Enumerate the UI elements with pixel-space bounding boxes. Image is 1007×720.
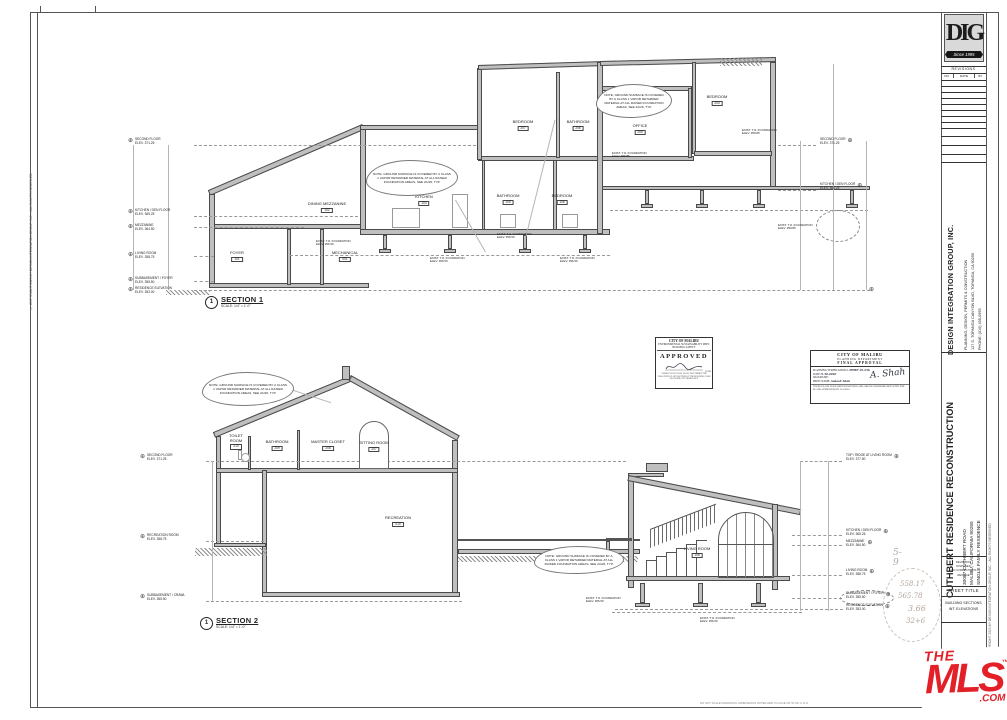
roof-bar — [360, 125, 482, 130]
arched-window — [718, 512, 774, 578]
footing — [579, 249, 591, 253]
room-label: RECREATION010 — [385, 516, 411, 527]
datum-icon: ⊕ — [140, 534, 145, 540]
wall — [692, 62, 696, 154]
foundation-callout: EXIST. T.O. FOUNDATIONELEV. 356.50 — [497, 233, 532, 240]
section-scale: SCALE: 1/4" = 1'-0" — [221, 304, 251, 308]
level-line — [800, 461, 842, 462]
level-marker: ⊕SUBBASEMENT / CRAWLELEV. 355.50 — [140, 594, 185, 602]
wall — [770, 62, 776, 188]
ground-note-cloud: NOTE: GROUND SURFACE IS COVERED BY A CLA… — [202, 372, 294, 406]
chimney — [342, 366, 350, 380]
datum-icon: ⊕ — [140, 454, 145, 460]
stamp-body: PLANNING VERIFICATION #: PPMP 19-236 DAT… — [811, 367, 909, 384]
room-label: BATHROOM209 — [266, 440, 289, 451]
grade-hatch — [195, 548, 267, 556]
level-marker: ⊕RECREATION ROOMELEV. 358.75 — [140, 534, 179, 542]
level-line — [194, 281, 214, 282]
room-label: DINING MEZZANINE102 — [308, 202, 346, 213]
footing — [641, 204, 653, 208]
pier — [757, 190, 761, 204]
stamp-header: CITY OF MALIBU PLANNING DEPARTMENT FINAL… — [811, 351, 909, 367]
footing — [751, 603, 766, 607]
revision-note: REVISIONS DISPOSED NO CORRECTIONS REISSU… — [941, 560, 986, 577]
room-label: BEDROOM204 — [707, 95, 728, 106]
stamp-division: BUILDING SAFETY — [657, 346, 711, 351]
datum-icon: ⊕ — [128, 138, 133, 144]
roof-hatch — [720, 58, 762, 66]
datum-icon: ⊕ — [128, 224, 133, 230]
second-floor-bar — [478, 156, 608, 161]
footing — [753, 204, 765, 208]
level-marker: ⊕KITCHEN / DEN FLOORELEV. 365.25 — [128, 209, 170, 217]
dimension-line — [133, 145, 134, 290]
revisions-title: REVISIONS — [941, 67, 986, 71]
ground-note-cloud: NOTE: GROUND SURFACE IS COVERED BY A CLA… — [534, 546, 624, 574]
datum-icon: ⊕ — [883, 529, 888, 535]
dimension-line — [800, 461, 801, 611]
basement-floor — [262, 592, 460, 597]
room-label: LIVING ROOM108 — [684, 547, 711, 558]
sheet-title-lines: BUILDING SECTIONS INT. ELEVATIONS — [941, 601, 986, 613]
firm-address: 127 S. TOPANGA CANYON BLVD, TOPANGA, CA … — [971, 175, 975, 350]
room-label: BEDROOM207 — [513, 120, 534, 131]
stamp-footer: THESE PLANS HAVE BEEN REVIEWED AND ARE I… — [811, 384, 909, 392]
wall — [452, 440, 458, 595]
room-label: BEDROOM106 — [552, 194, 573, 205]
stamp-fine-print: APPROVAL OF PLANS SHALL NOT PERMIT THE V… — [657, 373, 711, 381]
foundation-callout: EXIST. T.O. FOUNDATIONELEV. 359.85 — [742, 129, 777, 136]
signature-stroke — [664, 362, 704, 371]
building-approval-stamp: CITY OF MALIBU ENVIRONMENTAL SUSTAINABIL… — [655, 337, 713, 389]
frame-bottom-line — [30, 707, 998, 708]
planning-approval-stamp: CITY OF MALIBU PLANNING DEPARTMENT FINAL… — [810, 350, 910, 404]
pier — [645, 190, 649, 204]
kitchen-floor — [360, 229, 610, 235]
datum-icon: ⊕ — [128, 252, 133, 258]
revisions-columns: NO. DATE BY — [941, 74, 986, 78]
stamp-row-value: PPMP 19-236 — [849, 368, 869, 372]
fine-print: DO NOT SCALE DRAWINGS. DIMENSIONS NOTED … — [700, 701, 809, 705]
level-line — [194, 290, 870, 291]
level-marker: ⊕SUBBASEMENT / FOYERELEV. 355.50 — [128, 277, 173, 285]
foundation-callout: EXIST. T.O. FOUNDATIONELEV. 356.50 — [316, 240, 351, 247]
kitchen-island — [392, 208, 420, 228]
dig-monogram: DIG — [945, 15, 983, 51]
section-title: SECTION 1 — [221, 295, 263, 304]
footing — [214, 543, 266, 547]
section-title: SECTION 2 — [216, 616, 258, 625]
foundation-callout: EXIST. T.O. FOUNDATIONELEV. 359.85 — [778, 224, 813, 231]
datum-icon: ⊕ — [128, 287, 133, 293]
datum-icon: ⊕ — [886, 592, 891, 598]
level-marker: LIVING ROOMELEV. 358.75⊕ — [846, 569, 874, 577]
frame-top-line — [30, 12, 998, 13]
datum-icon: ⊕ — [848, 138, 853, 144]
datum-icon: ⊕ — [894, 454, 899, 460]
level-line — [194, 227, 304, 228]
plan-sheet: © COPYRIGHT 2023 BY DESIGN INTEGRATION G… — [0, 0, 1007, 720]
frame-right-line — [998, 12, 999, 708]
pier — [583, 235, 587, 249]
level-line — [778, 190, 816, 191]
copyright-right-text: © COPYRIGHT 2023 BY DESIGN INTEGRATION G… — [988, 360, 992, 660]
room-label: MECHANICAL001 — [332, 251, 358, 262]
project-type: SINGLE FAMILY RESIDENCE — [977, 375, 982, 585]
level-marker: MEZZANINEELEV. 364.50⊕ — [846, 540, 872, 548]
copyright-left-text: © COPYRIGHT 2023 BY DESIGN INTEGRATION G… — [29, 30, 33, 310]
firm-name: DESIGN INTEGRATION GROUP, INC. — [946, 170, 955, 355]
dimension-line — [168, 145, 169, 290]
bath-fixture — [500, 214, 516, 228]
titleblock-inner-line — [986, 12, 987, 708]
foundation-callout: EXIST. T.O. FOUNDATIONELEV. 359.85 — [612, 152, 647, 159]
room-label: KITCHEN103 — [415, 195, 433, 206]
pier — [640, 583, 645, 603]
sheet-title-label: SHEET TITLE — [941, 588, 986, 593]
stamp-row-label: SIGNATURE: — [813, 376, 829, 379]
level-line — [194, 145, 476, 146]
firm-services: PLANNING, DESIGN, PERMITS & CONSTRUCTION — [964, 175, 968, 350]
registration-tick — [40, 6, 41, 12]
footing — [379, 249, 391, 253]
leader-line — [525, 120, 555, 237]
level-marker: SUBBASEMENT / FOYERELEV. 355.50⊕ — [846, 592, 891, 600]
level-marker: ⊕RESIDENCE ELEVATIONELEV. 353.00 — [128, 287, 172, 295]
room-label: SITTING ROOM207 — [359, 441, 388, 452]
frame-left-inner-line — [37, 12, 38, 708]
wall — [287, 229, 291, 285]
wall — [297, 430, 300, 470]
section-bubble: 1 — [200, 617, 213, 630]
parapet — [646, 463, 668, 472]
level-marker: ⊕SECOND FLOORELEV. 371.25 — [140, 454, 173, 462]
mls-logo: THE MLS™ .COM — [920, 647, 1007, 720]
footing — [696, 204, 708, 208]
datum-icon: ⊕ — [869, 569, 874, 575]
stamp-approved: APPROVED — [657, 353, 711, 360]
pier — [850, 190, 854, 204]
level-line — [778, 145, 816, 146]
dimension-line — [212, 461, 213, 601]
window-transom — [718, 544, 774, 545]
footing — [846, 204, 858, 208]
level-marker: TOP / RIDGE AT LIVING ROOMELEV. 377.50⊕ — [846, 454, 899, 462]
pencil-note: 32+6 — [906, 617, 925, 625]
foundation-callout: EXIST. T.O. FOUNDATIONELEV. 356.50 — [586, 597, 621, 604]
level-line — [206, 461, 626, 462]
section1-title-group: 1 SECTION 1 SCALE: 1/4" = 1'-0" — [205, 295, 325, 313]
wall — [477, 68, 482, 160]
level-marker: ⊕SECOND FLOORELEV. 371.25 — [128, 138, 161, 146]
pier — [756, 583, 761, 603]
level-marker: ⊕LIVING ROOMELEV. 358.75 — [128, 252, 156, 260]
wall — [628, 476, 634, 588]
dimension-line — [828, 461, 829, 611]
pier — [383, 235, 387, 249]
datum-icon: ⊕ — [857, 183, 862, 189]
wall — [320, 229, 324, 285]
room-label: FOYER101 — [230, 251, 244, 262]
firm-phone: PHONE: (310) 455-0995 — [978, 175, 982, 350]
room-label: MASTER CLOSET208 — [311, 440, 345, 451]
project-address2: MALIBU, CALIFORNIA 90265 — [970, 375, 975, 585]
registration-tick — [95, 6, 96, 12]
shed-roof — [208, 124, 365, 196]
datum-icon: ⊕ — [869, 287, 874, 293]
level-line — [194, 216, 358, 217]
footing — [693, 603, 708, 607]
pier — [448, 235, 452, 249]
wall — [556, 72, 560, 158]
pier — [698, 583, 703, 603]
pencil-note: 558.17 — [900, 580, 925, 588]
upper-roof — [478, 61, 602, 70]
stamp-row-label: PRINT NAME: — [813, 380, 830, 383]
pier — [700, 190, 704, 204]
datum-icon: ⊕ — [140, 594, 145, 600]
dimension-line — [866, 141, 867, 290]
mls-logo-name: MLS™ — [924, 660, 1005, 696]
bed-fixture — [562, 214, 578, 228]
footing — [635, 603, 650, 607]
dig-logo: DIG Since 1995 — [944, 14, 984, 62]
datum-icon: ⊕ — [867, 540, 872, 546]
pencil-note: 565.78 — [898, 592, 923, 600]
project-address1: 30087 CUTHBERT ROAD — [963, 375, 968, 585]
wall — [482, 160, 485, 230]
room-label: OFFICE205 — [633, 124, 648, 135]
level-marker: ⊕MEZZANINEELEV. 364.50 — [128, 224, 154, 232]
datum-icon: ⊕ — [128, 209, 133, 215]
floor-bar — [216, 468, 458, 473]
revision-cloud — [816, 210, 860, 242]
ground-note-cloud: NOTE: GROUND SURFACE IS COVERED BY A CLA… — [596, 84, 672, 118]
bedroom-floor — [694, 151, 772, 156]
wall — [216, 436, 221, 546]
wall — [248, 436, 251, 470]
signature-script: A. Shah — [869, 367, 905, 381]
dimension-line — [833, 64, 834, 290]
trademark-symbol: ™ — [1002, 659, 1007, 666]
stamp-title: FINAL APPROVAL — [811, 361, 909, 365]
foundation-callout: EXIST. T.O. FOUNDATIONELEV. 356.50 — [430, 257, 465, 264]
level-line — [615, 609, 843, 610]
foundation-callout: EXIST. T.O. FOUNDATIONELEV. 356.50 — [700, 617, 735, 624]
level-marker: KITCHEN / DEN FLOORELEV. 365.25⊕ — [846, 529, 888, 537]
room-label: TOILET ROOM210 — [227, 434, 245, 450]
level-marker: KITCHEN / DEN FLOORELEV. 365.25⊕ — [820, 183, 862, 191]
footing — [519, 249, 531, 253]
level-line — [206, 601, 462, 602]
pencil-note: 5-9 — [893, 548, 902, 568]
level-marker: RESIDENCE ELEVATIONELEV. 353.00⊕ — [846, 604, 890, 612]
level-marker: SECOND FLOORELEV. 371.25⊕ — [820, 138, 853, 146]
stamp-row-value: Aakash Shah — [831, 379, 850, 383]
section-bubble: 1 — [205, 296, 218, 309]
datum-icon: ⊕ — [128, 277, 133, 283]
section-scale: SCALE: 1/4" = 1'-0" — [216, 625, 246, 629]
level-line — [206, 541, 264, 542]
room-label: BATHROOM206 — [567, 120, 590, 131]
crawl-line — [612, 612, 802, 613]
level-line — [194, 256, 214, 257]
wall — [262, 470, 267, 595]
pencil-note: 3.66 — [908, 604, 926, 613]
section2-title-group: 1 SECTION 2 SCALE: 1/4" = 1'-0" — [200, 616, 320, 634]
wall — [209, 194, 215, 286]
footing — [444, 249, 456, 253]
ground-note-cloud: NOTE: GROUND SURFACE IS COVERED BY A CLA… — [366, 160, 458, 196]
room-label: BATHROOM105 — [497, 194, 520, 205]
dig-tagline-ribbon: Since 1995 — [945, 51, 983, 58]
dimension-line — [800, 141, 801, 290]
datum-icon: ⊕ — [885, 604, 890, 610]
foundation-callout: EXIST. T.O. FOUNDATIONELEV. 356.50 — [560, 257, 595, 264]
